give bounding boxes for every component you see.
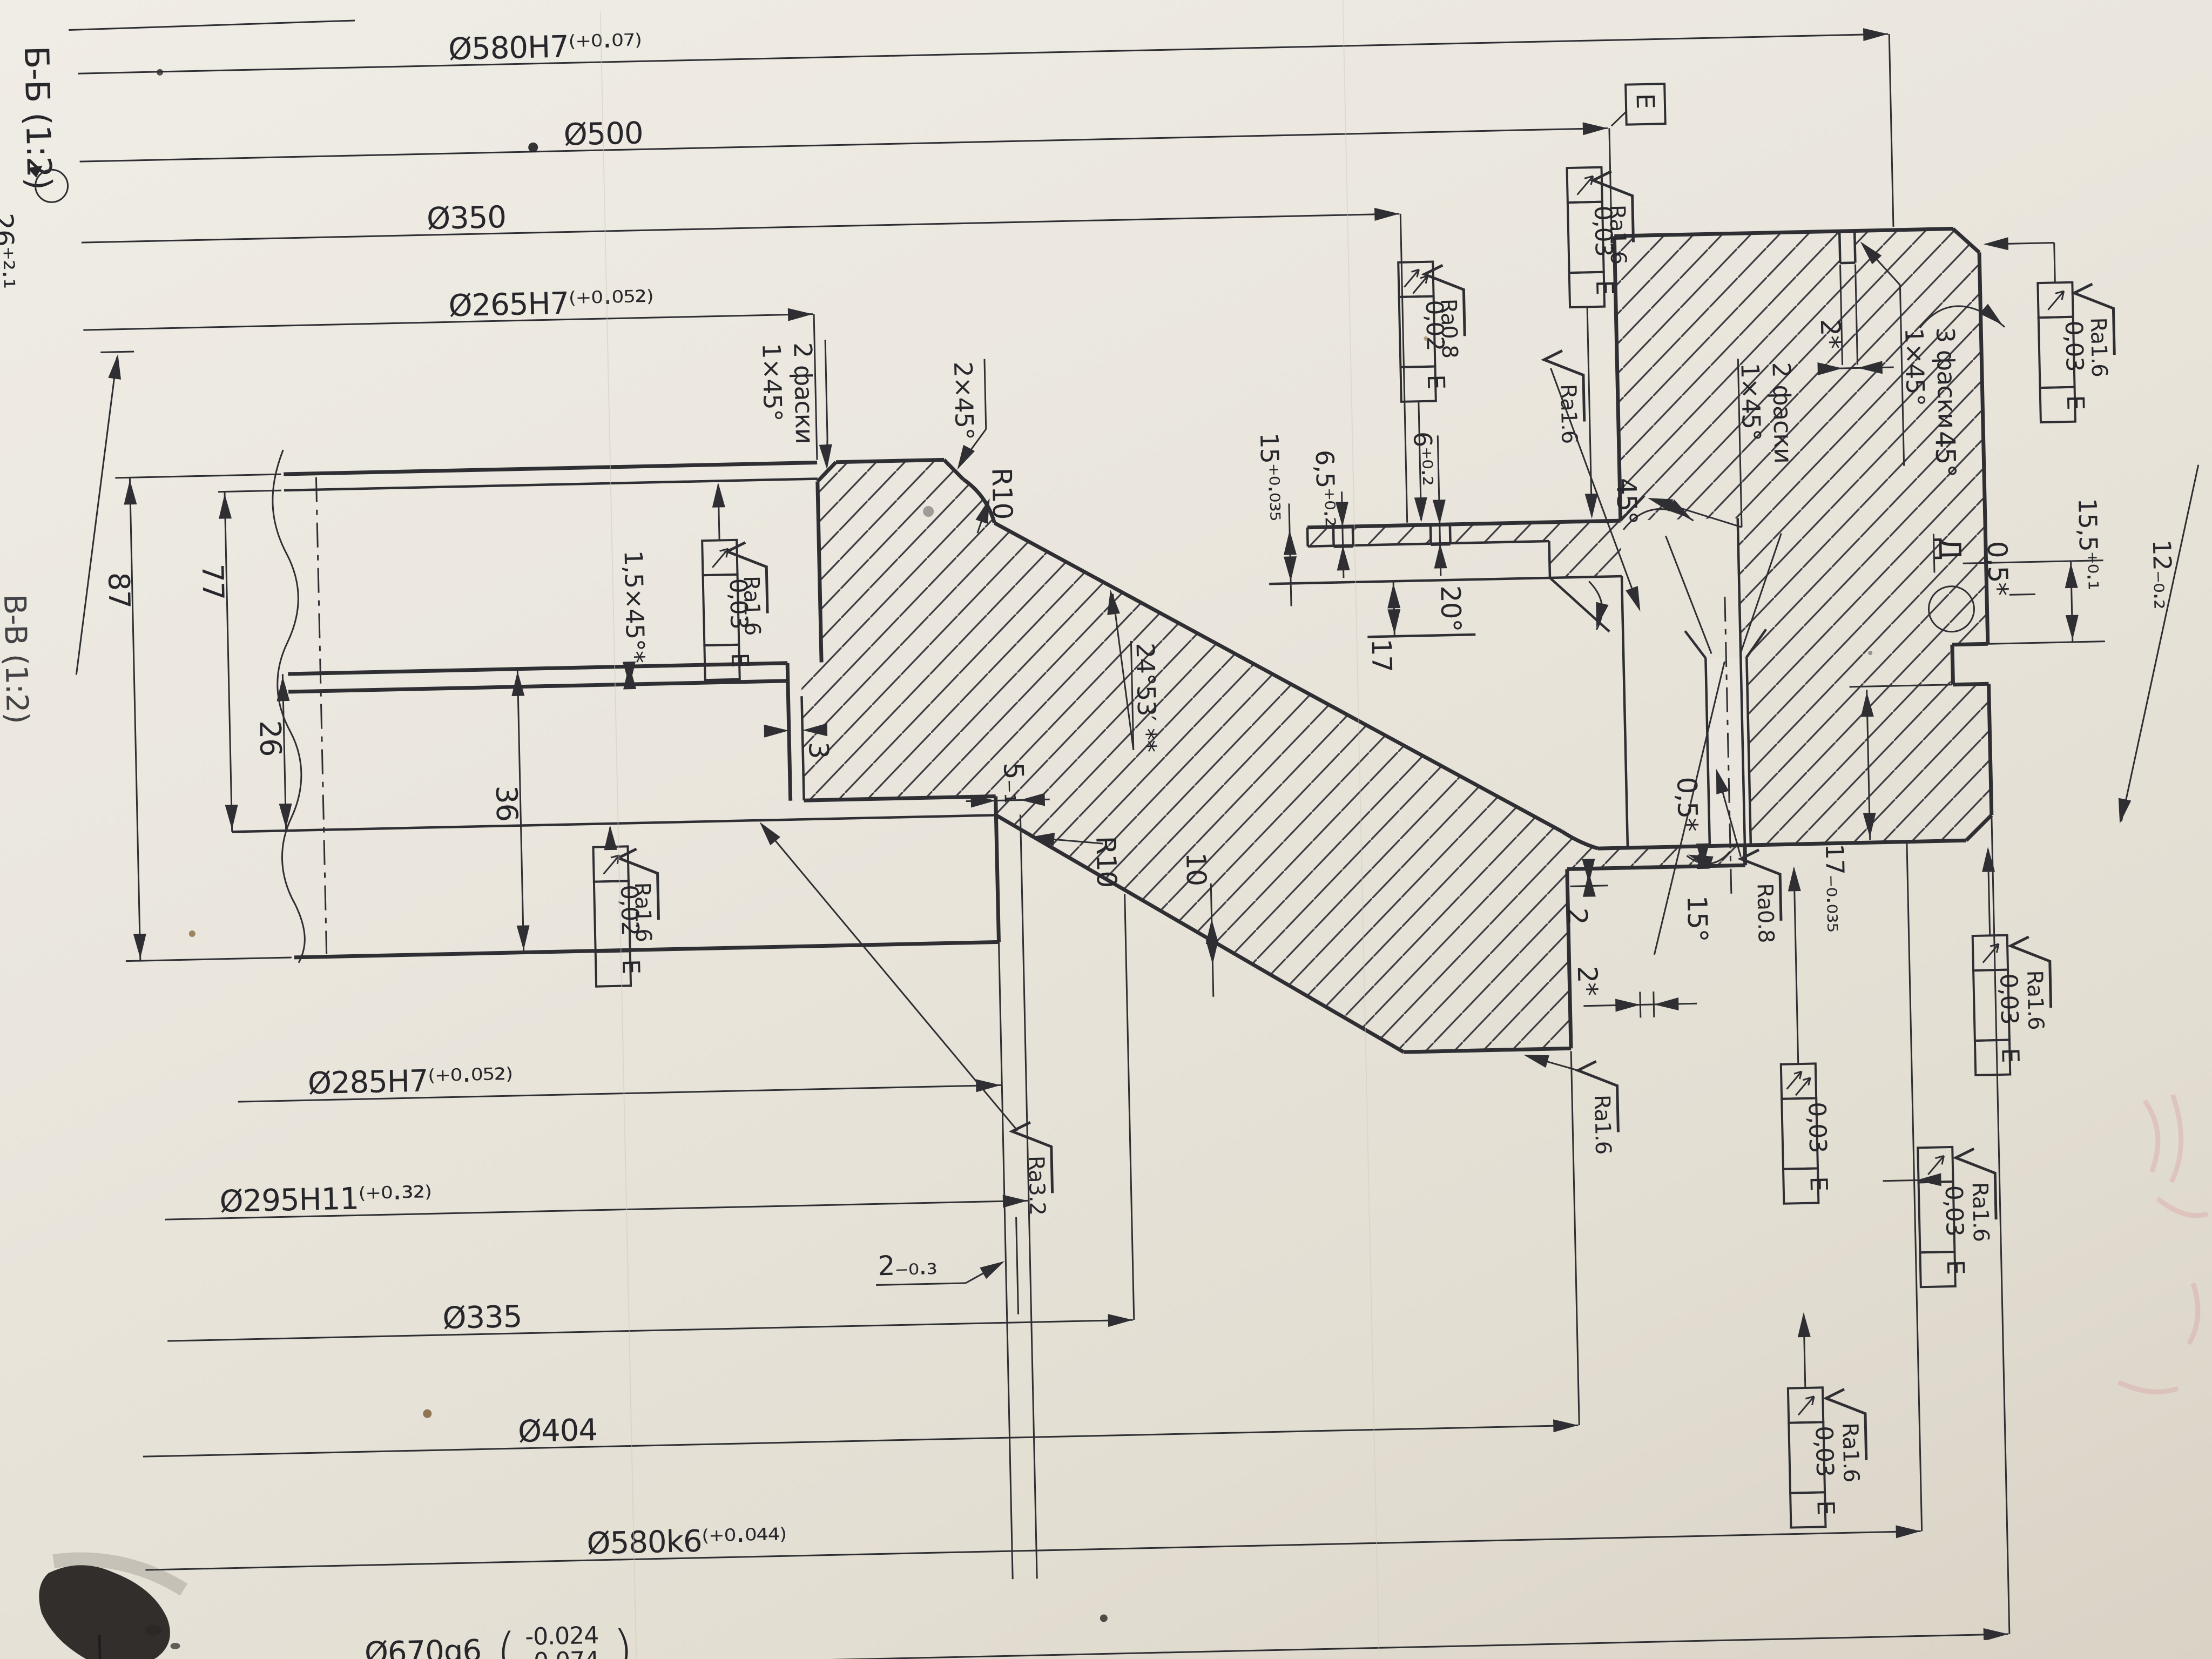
dim-17: 17 (1365, 638, 1397, 672)
break-line (272, 450, 306, 963)
runout-icon (1928, 1156, 1945, 1175)
dim-155-01: 15,5⁺⁰·¹ (2073, 498, 2104, 590)
ra08-f3: Ra0.8 (1436, 298, 1462, 358)
ra16-f1: Ra1.6 (739, 576, 765, 636)
tolerance-frame: 0,03 E Ra1.6 (701, 482, 769, 680)
runout-icon (1982, 944, 1999, 963)
left-dimensions: 87 77 26 36 (99, 469, 530, 962)
dim-26: 26 (253, 720, 287, 757)
dim-d670g6: Ø670g6 ( -0.024 -0.074 ) (364, 1619, 633, 1659)
dim-15deg: 15° (1681, 895, 1714, 942)
dim-d335: Ø335 (442, 1299, 522, 1336)
frame-datum: E (1996, 1048, 2024, 1063)
runout-icon (2048, 291, 2065, 310)
dim-2-03: 2₋₀.₃ (878, 1249, 937, 1282)
frame-value: 0,03 (1994, 973, 2023, 1024)
ra16-f7: Ra1.6 (1967, 1182, 1993, 1242)
dim-d580k6: Ø580k6⁽⁺⁰·⁰⁴⁴⁾ (586, 1522, 787, 1561)
dim-d670g6-lower: -0.074 (525, 1647, 599, 1659)
dim-2star-top: 2* (1815, 319, 1846, 349)
note-1x45-b: 1×45° (1899, 328, 1930, 406)
total-runout-icon (1786, 1071, 1811, 1096)
corner-dim: 26⁺²·¹ (0, 213, 21, 289)
frame-value: 0,03 (2060, 320, 2088, 372)
frame-value: 0,03 (1940, 1185, 1968, 1236)
drawing-sheet: Ø580H7⁽⁺⁰·⁰⁷⁾ Ø500 Ø350 Ø265H7⁽⁺⁰·⁰⁵²⁾ E… (0, 0, 2212, 1659)
dim-d285h7: Ø285H7⁽⁺⁰·⁰⁵²⁾ (307, 1062, 513, 1101)
frame-datum: E (2061, 395, 2089, 410)
dim-77: 77 (195, 563, 230, 600)
frame-datum: E (1590, 280, 1618, 295)
dim-d350: Ø350 (426, 200, 506, 237)
section-label-2: В-В (1:2) (0, 594, 35, 724)
tolerance-frame: 0,03 E Ra1.6 (1983, 235, 2115, 423)
section-title: Б-Б (1:2) (17, 45, 68, 203)
photographed-drawing-sheet: Ø580H7⁽⁺⁰·⁰⁷⁾ Ø500 Ø350 Ø265H7⁽⁺⁰·⁰⁵²⁾ E… (0, 0, 2212, 1659)
dim-d265h7: Ø265H7⁽⁺⁰·⁰⁵²⁾ (448, 284, 654, 323)
ra16-f2: Ra1.6 (630, 882, 656, 942)
dim-05star-top: 0,5* (1981, 541, 2014, 596)
dim-d404: Ø404 (517, 1413, 597, 1449)
dim-24deg53: 24°53′ ** (1130, 643, 1162, 752)
dim-45deg-2: 45° (1610, 477, 1643, 524)
dim-36: 36 (489, 785, 524, 822)
ra32: Ra3.2 (1023, 1155, 1049, 1215)
dim-d670g6-main: Ø670g6 (364, 1634, 482, 1659)
paren-open: ( (496, 1622, 517, 1659)
datum-letter: E (1631, 93, 1661, 109)
dim-15-0035: 15⁺⁰·⁰³⁵ (1255, 433, 1286, 521)
ra16-f4: Ra1.6 (1604, 205, 1630, 265)
dim-20deg: 20° (1434, 585, 1467, 632)
dim-d295h11: Ø295H11⁽⁺⁰·³²⁾ (219, 1179, 432, 1219)
dim-45deg-1: 45° (1929, 430, 1961, 477)
ra16-f5: Ra1.6 (2086, 317, 2112, 377)
dim-12-02: 12₋₀.₂ (2147, 539, 2178, 609)
runout-icon (1577, 176, 1594, 195)
runout-icon (1798, 1397, 1815, 1415)
dim-ch15: 1,5×45°* (619, 550, 651, 663)
frame-value: 0,03 (1803, 1102, 1831, 1153)
frame-datum: E (1804, 1176, 1832, 1191)
frame-datum: E (1941, 1259, 1970, 1274)
note-1x45-a: 1×45° (757, 343, 787, 421)
dim-10: 10 (1180, 852, 1212, 886)
dim-d580h7: Ø580H7⁽⁺⁰·⁰⁷⁾ (448, 28, 642, 67)
paren-close: ) (612, 1619, 633, 1659)
dim-87: 87 (102, 572, 136, 609)
tolerance-frame: 0,03 E Ra1.6 (1971, 846, 2052, 1075)
dim-3: 3 (802, 741, 834, 759)
note-2x45: 2×45° (948, 361, 979, 440)
frame-datum: E (1811, 1500, 1839, 1515)
tolerance-frame: 0,03 E Ra1.6 (1786, 1311, 1868, 1528)
bleed-through-marks (2112, 1094, 2211, 1393)
note-2faski-c: 2 фаски (1766, 362, 1798, 464)
note-2faski-a: 2 фаски (788, 342, 819, 444)
dim-r10-b: R10 (1090, 835, 1122, 888)
dim-17-0035: 17₋₀.₀₃₅ (1820, 844, 1851, 932)
ra16-f8: Ra1.6 (1837, 1422, 1863, 1482)
ra08-right: Ra0.8 (1752, 883, 1778, 943)
dim-r10-a: R10 (986, 467, 1018, 520)
view-letter: Д (1932, 536, 1967, 560)
flange-hole-centerline (316, 477, 326, 954)
tolerance-frame: 0,02 E Ra1.6 (593, 824, 660, 987)
dim-2star-right: 2* (1572, 966, 1603, 996)
dim-2: 2 (1561, 907, 1593, 925)
dim-65-02: 6,5⁺⁰·² (1310, 449, 1341, 527)
rim-notch-cutout (1839, 229, 1855, 263)
bottom-dimensions: Ø285H7⁽⁺⁰·⁰⁵²⁾ Ø295H11⁽⁺⁰·³²⁾ Ø335 Ø404 … (130, 793, 2010, 1659)
tolerance-frame: 0,03 E Ra1.6 (1882, 1146, 1998, 1287)
frame-datum: E (726, 652, 754, 667)
datum-flag-e: E (1610, 84, 1665, 126)
frame-value: 0,03 (1810, 1426, 1838, 1477)
dim-5: 5₋₁ (997, 762, 1030, 803)
frame-datum: E (1422, 374, 1450, 389)
ra16-f9: Ra1.6 (2022, 970, 2048, 1030)
ra16-mid-bottom: Ra1.6 (1589, 1095, 1615, 1155)
dim-6-02: 6⁺⁰·² (1408, 431, 1438, 485)
dim-05star-right: 0,5* (1671, 777, 1703, 832)
note-3faski: 3 фаски (1931, 327, 1962, 429)
